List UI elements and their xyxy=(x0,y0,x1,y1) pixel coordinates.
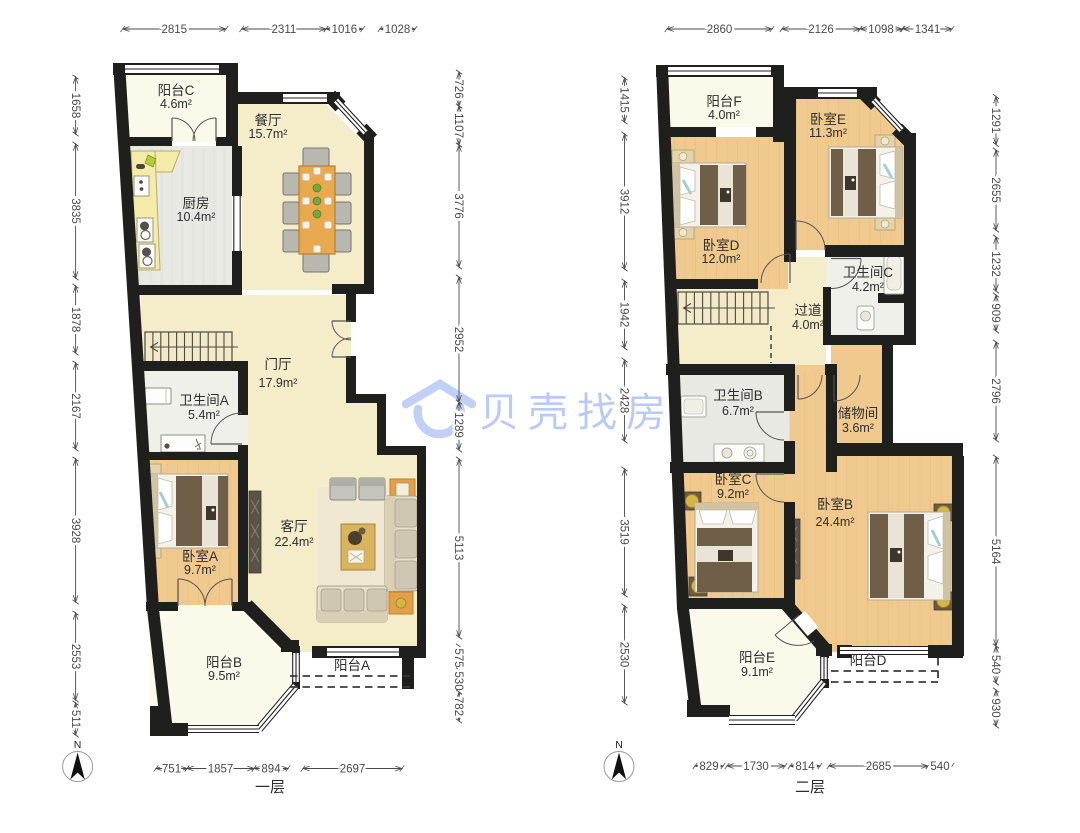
svg-text:814: 814 xyxy=(795,761,815,773)
svg-text:1232: 1232 xyxy=(989,251,1001,277)
svg-text:客厅: 客厅 xyxy=(281,518,308,534)
svg-text:1857: 1857 xyxy=(208,763,234,775)
svg-text:894: 894 xyxy=(261,763,281,775)
svg-text:1415: 1415 xyxy=(618,87,630,113)
svg-text:10.4m²: 10.4m² xyxy=(177,210,216,224)
svg-text:2952: 2952 xyxy=(452,327,464,353)
svg-text:阳台F: 阳台F xyxy=(706,94,741,109)
svg-text:卧室B: 卧室B xyxy=(817,496,853,512)
svg-text:一层: 一层 xyxy=(255,779,285,796)
svg-text:阳台A: 阳台A xyxy=(334,658,370,673)
svg-text:卫生间A: 卫生间A xyxy=(179,393,229,408)
svg-text:5.4m²: 5.4m² xyxy=(188,408,220,422)
svg-text:阳台B: 阳台B xyxy=(206,655,242,670)
svg-text:二层: 二层 xyxy=(795,779,825,796)
svg-text:2860: 2860 xyxy=(707,24,733,36)
svg-text:N: N xyxy=(74,739,82,751)
svg-text:1942: 1942 xyxy=(618,302,630,328)
svg-text:15.7m²: 15.7m² xyxy=(249,127,288,141)
svg-text:2530: 2530 xyxy=(618,642,630,668)
svg-text:5113: 5113 xyxy=(452,536,464,561)
svg-text:卧室E: 卧室E xyxy=(810,111,846,127)
svg-text:2553: 2553 xyxy=(69,644,81,670)
svg-text:2697: 2697 xyxy=(340,763,366,775)
svg-text:4.6m²: 4.6m² xyxy=(160,97,192,111)
svg-text:1730: 1730 xyxy=(743,761,769,773)
svg-text:卧室A: 卧室A xyxy=(182,548,218,564)
svg-text:540: 540 xyxy=(989,655,1001,674)
svg-text:11.3m²: 11.3m² xyxy=(809,126,847,140)
svg-text:2655: 2655 xyxy=(989,177,1001,203)
svg-text:2685: 2685 xyxy=(866,761,892,773)
svg-text:卧室D: 卧室D xyxy=(703,237,740,253)
svg-text:24.4m²: 24.4m² xyxy=(816,515,855,529)
svg-text:540: 540 xyxy=(930,761,949,773)
svg-text:3912: 3912 xyxy=(618,189,630,215)
svg-text:909: 909 xyxy=(989,303,1001,322)
svg-text:阳台C: 阳台C xyxy=(158,83,195,98)
svg-text:厨房: 厨房 xyxy=(183,196,210,211)
svg-text:2428: 2428 xyxy=(618,388,630,414)
svg-text:卫生间B: 卫生间B xyxy=(713,388,763,403)
svg-text:511: 511 xyxy=(69,710,81,728)
svg-text:3928: 3928 xyxy=(69,518,81,544)
svg-text:9.7m²: 9.7m² xyxy=(184,563,216,577)
svg-text:751: 751 xyxy=(162,763,181,775)
svg-text:N: N xyxy=(615,739,623,751)
svg-text:1098: 1098 xyxy=(868,24,894,36)
svg-text:575: 575 xyxy=(452,648,464,667)
svg-text:5164: 5164 xyxy=(989,539,1001,565)
svg-text:门厅: 门厅 xyxy=(265,357,292,372)
svg-text:2311: 2311 xyxy=(272,24,297,36)
svg-text:2126: 2126 xyxy=(808,24,834,36)
svg-text:1658: 1658 xyxy=(69,93,81,119)
svg-text:9.5m²: 9.5m² xyxy=(208,669,240,683)
svg-text:储物间: 储物间 xyxy=(838,406,879,421)
svg-text:1341: 1341 xyxy=(915,24,941,36)
svg-text:530: 530 xyxy=(452,671,464,690)
svg-text:2815: 2815 xyxy=(162,24,188,36)
svg-text:1016: 1016 xyxy=(332,24,358,36)
svg-text:9.2m²: 9.2m² xyxy=(717,487,749,501)
svg-text:卫生间C: 卫生间C xyxy=(843,265,893,280)
svg-text:9.1m²: 9.1m² xyxy=(741,665,773,679)
svg-text:930: 930 xyxy=(989,698,1001,717)
svg-text:2796: 2796 xyxy=(989,378,1001,404)
svg-text:3835: 3835 xyxy=(69,198,81,224)
svg-text:4.0m²: 4.0m² xyxy=(792,318,824,332)
svg-text:2167: 2167 xyxy=(69,393,81,419)
svg-text:餐厅: 餐厅 xyxy=(255,113,282,128)
svg-text:阳台E: 阳台E xyxy=(739,650,775,665)
svg-text:1291: 1291 xyxy=(989,108,1001,134)
svg-text:1028: 1028 xyxy=(385,24,411,36)
svg-text:3776: 3776 xyxy=(452,193,464,219)
svg-text:726: 726 xyxy=(452,79,464,98)
svg-text:22.4m²: 22.4m² xyxy=(275,535,314,549)
svg-text:1289: 1289 xyxy=(452,412,464,438)
svg-text:3.6m²: 3.6m² xyxy=(842,421,874,435)
svg-text:6.7m²: 6.7m² xyxy=(722,404,754,418)
svg-text:782: 782 xyxy=(452,697,464,716)
svg-text:卧室C: 卧室C xyxy=(715,471,752,487)
svg-text:1107: 1107 xyxy=(452,113,464,138)
svg-text:4.2m²: 4.2m² xyxy=(852,280,884,294)
svg-text:1878: 1878 xyxy=(69,307,81,333)
svg-text:贝壳找房: 贝壳找房 xyxy=(479,391,675,435)
svg-text:3519: 3519 xyxy=(618,519,630,545)
svg-text:829: 829 xyxy=(699,761,718,773)
svg-text:过道: 过道 xyxy=(795,303,822,318)
svg-text:12.0m²: 12.0m² xyxy=(702,252,741,266)
svg-text:17.9m²: 17.9m² xyxy=(259,376,298,390)
svg-text:4.0m²: 4.0m² xyxy=(708,108,740,122)
svg-text:阳台D: 阳台D xyxy=(850,653,887,668)
